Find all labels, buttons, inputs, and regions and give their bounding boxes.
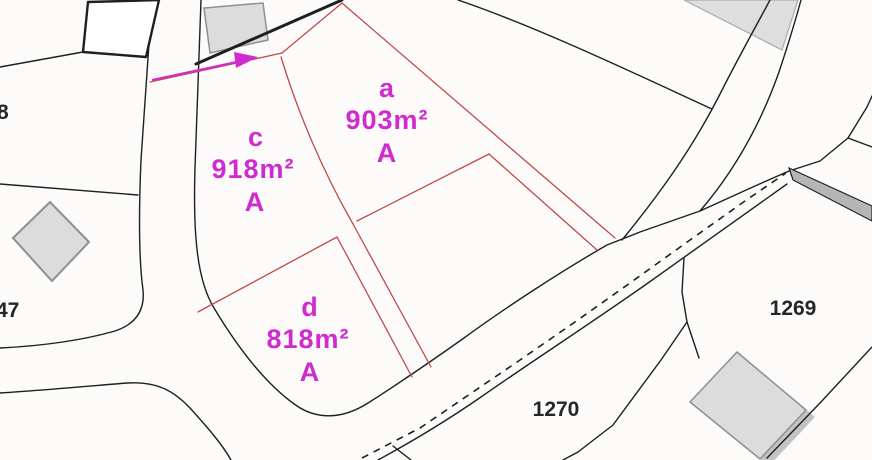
parcel-d-area: 818m² (266, 324, 349, 354)
parcel-c-area: 918m² (211, 154, 294, 184)
parcel-c-class: A (245, 187, 266, 217)
parcel-number-left-top: 8 (0, 101, 9, 124)
parcel-number-1269: 1269 (770, 297, 817, 320)
parcel-a-letter: a (379, 73, 395, 103)
parcel-d-letter: d (301, 292, 319, 322)
parcel-number-1270: 1270 (533, 398, 580, 421)
parcel-d-class: A (300, 357, 321, 387)
parcel-c-letter: c (248, 122, 264, 152)
parcel-a-area: 903m² (345, 105, 428, 135)
cadastral-map: a 903m² A c 918m² A d 818m² A 8 47 1269 … (0, 0, 872, 460)
parcel-quad-top-left (83, 0, 159, 57)
parcel-number-left-bottom: 47 (0, 299, 19, 322)
parcel-a-class: A (377, 138, 398, 168)
